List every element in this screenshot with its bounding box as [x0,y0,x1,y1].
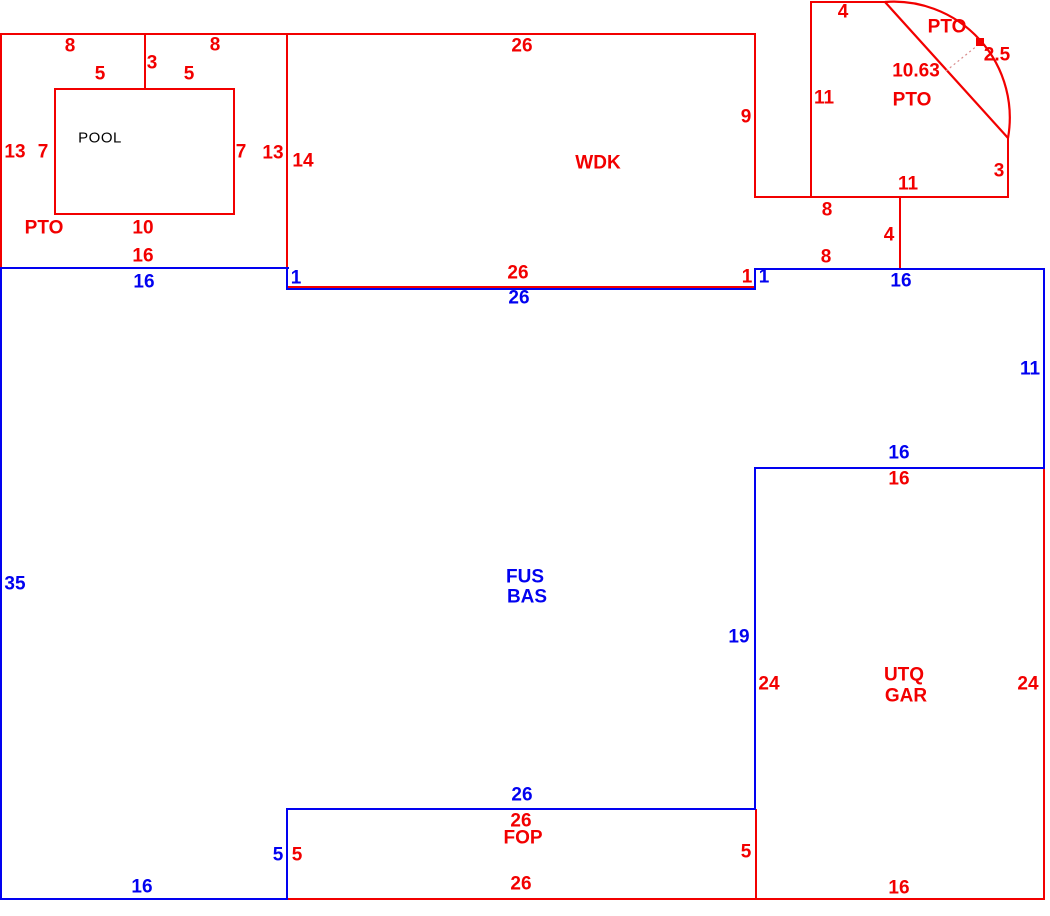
dim-label: 3 [147,54,158,73]
dim-label: 7 [38,143,49,162]
dim-label: 5 [273,846,284,865]
dim-label: 4 [838,3,849,22]
dim-label: 5 [184,65,195,84]
dim-label: 26 [507,264,528,283]
dim-label: 4 [884,226,895,245]
dim-label: 11 [898,175,918,194]
dim-label: 16 [131,878,152,897]
dim-label: 3 [994,162,1005,181]
dim-label: 5 [741,843,752,862]
dim-label: 16 [888,444,909,463]
area-label-fop: FOP [503,829,542,848]
dim-label: 26 [510,875,531,894]
area-label-utq: UTQ [884,666,924,685]
dim-label: 8 [210,36,221,55]
dim-label: 8 [821,248,832,267]
dim-label: 5 [292,846,303,865]
dim-label: 9 [741,108,752,127]
dim-label: 16 [133,273,154,292]
dim-label: 7 [236,143,247,162]
dim-label: 10.63 [892,62,940,81]
dim-label: 11 [814,89,834,108]
dim-label: 19 [728,628,749,647]
area-label-fus: FUS [506,568,544,587]
dim-label: 8 [822,201,833,220]
area-label-wdk: WDK [575,154,620,173]
dim-label: 26 [508,289,529,308]
dim-label: 14 [292,152,313,171]
dim-label: 26 [511,37,532,56]
dim-label: 16 [888,879,909,898]
dim-label: 13 [4,143,25,162]
dim-label: 1 [759,268,770,287]
dim-label: 1 [291,269,302,288]
dim-label: 16 [890,272,911,291]
dim-label: 24 [1017,675,1038,694]
dim-label: 2.5 [984,46,1010,65]
dim-label: 16 [888,470,909,489]
dim-label: 1 [742,268,753,287]
area-label-pto-arc: PTO [893,91,932,110]
dim-label: 11 [1020,360,1040,379]
area-label-pto: PTO [25,219,64,238]
dim-label: 13 [262,144,283,163]
dim-label: 5 [95,65,106,84]
floor-plan-sketch: 83855137POOL71314PTO10161626WDK912626114… [0,0,1050,916]
area-label-pool: POOL [78,131,122,146]
area-label-bas: BAS [507,588,547,607]
area-label-gar: GAR [885,687,927,706]
area-label-pto-arc: PTO [928,18,967,37]
sagitta-leader-dotted [946,45,978,71]
dim-label: 24 [758,675,779,694]
dim-label: 8 [65,37,76,56]
dim-label: 16 [132,247,153,266]
dim-label: 35 [4,575,25,594]
dim-label: 26 [511,786,532,805]
dim-label: 10 [132,219,153,238]
